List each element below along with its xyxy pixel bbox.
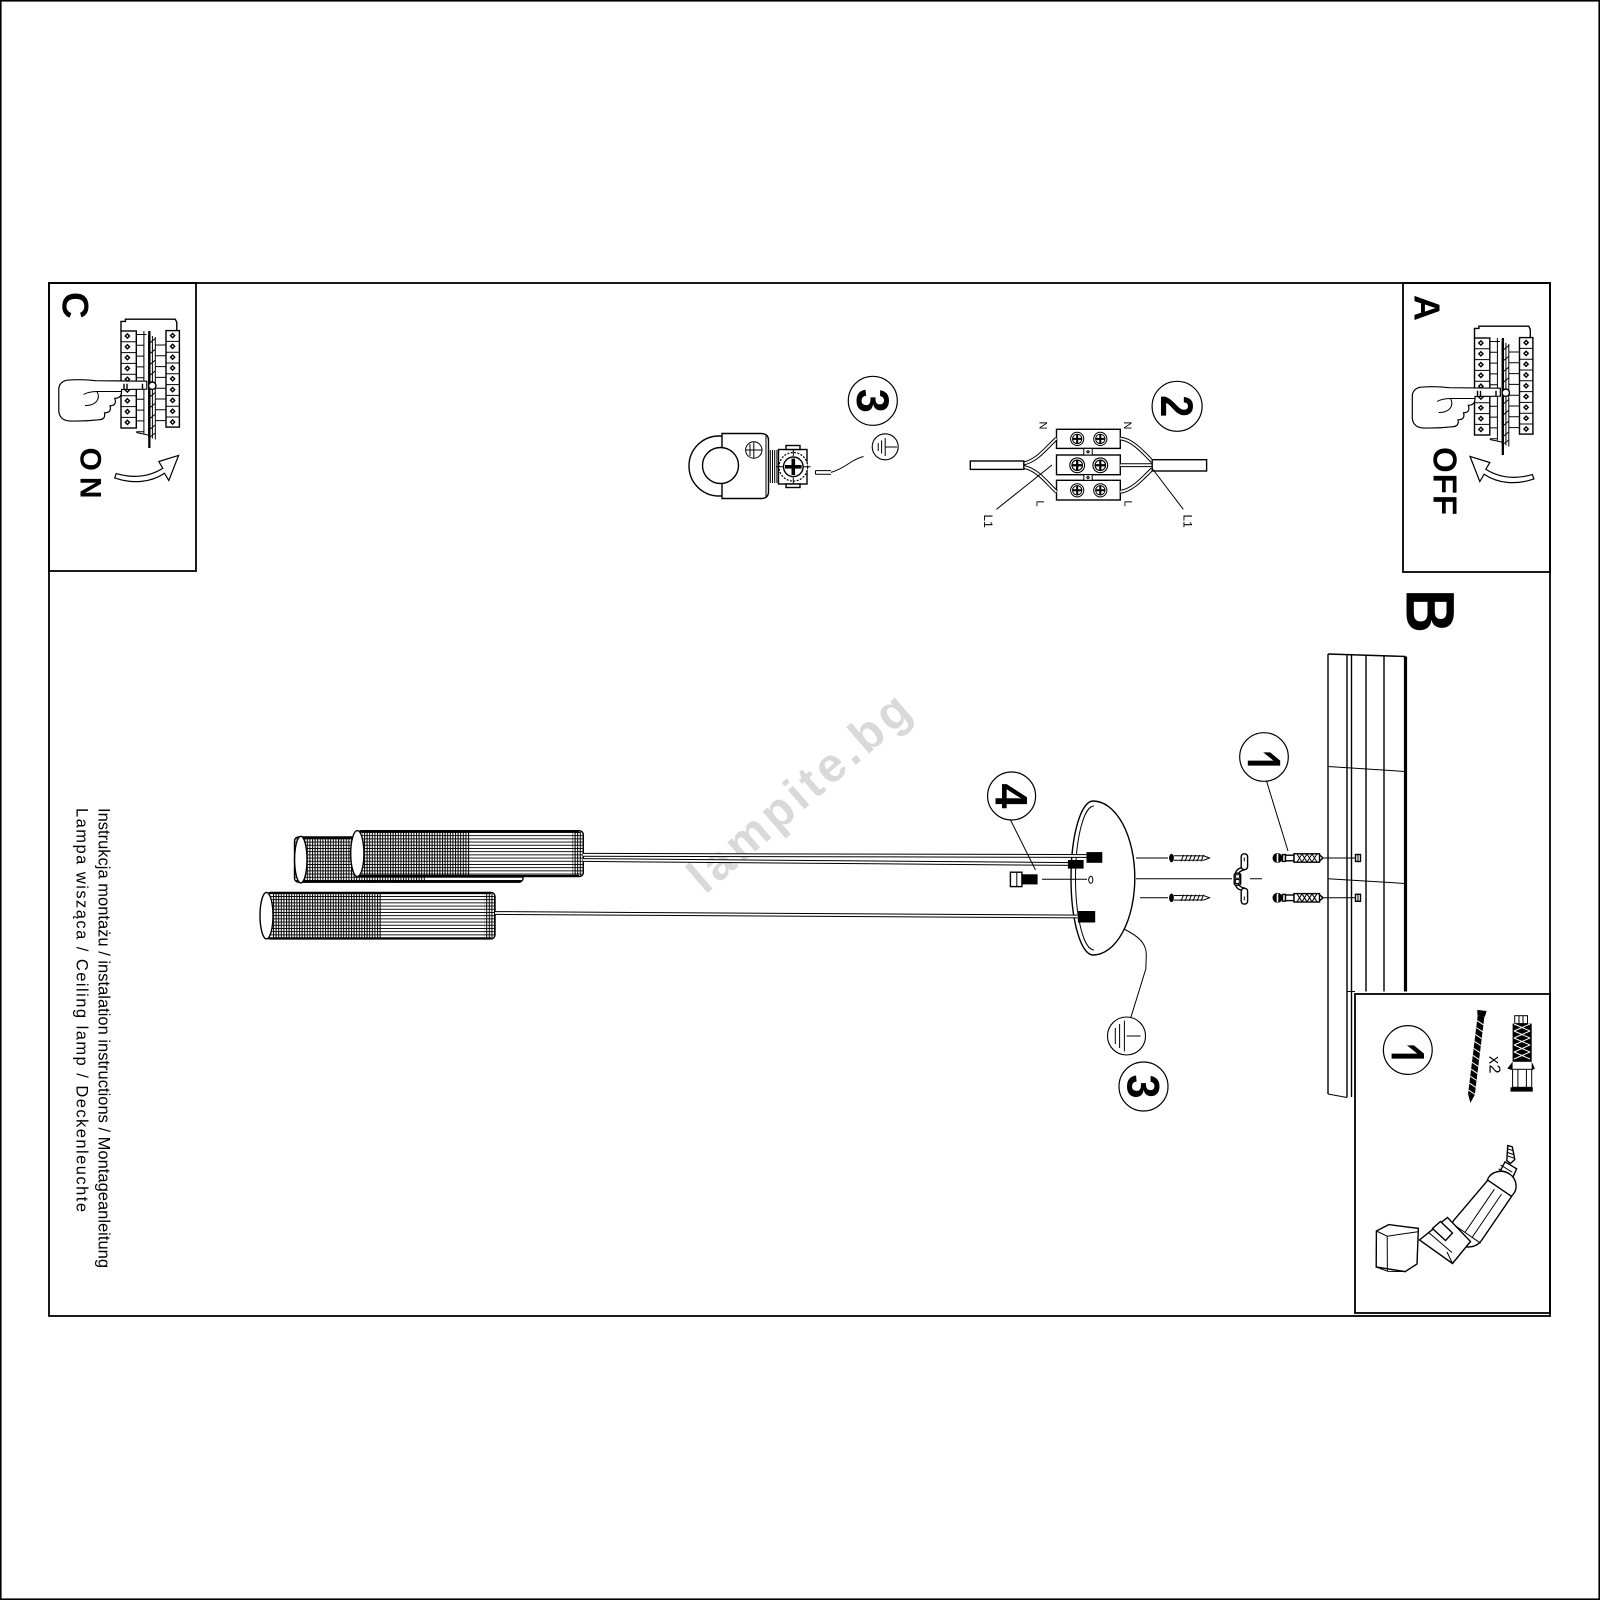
svg-text:L1: L1 <box>981 515 995 529</box>
svg-text:N: N <box>1036 422 1048 430</box>
svg-text:3: 3 <box>1118 1075 1169 1099</box>
svg-text:B: B <box>1392 589 1469 633</box>
svg-text:L: L <box>1034 501 1046 507</box>
svg-text:N: N <box>1121 422 1133 430</box>
svg-text:3: 3 <box>847 389 898 413</box>
svg-text:x2: x2 <box>1485 1056 1502 1074</box>
svg-text:OFF: OFF <box>1427 447 1464 516</box>
svg-text:Lampa wisząca / Ceiling lamp /: Lampa wisząca / Ceiling lamp / Deckenleu… <box>73 808 91 1212</box>
svg-text:Instrukcja montażu / instalati: Instrukcja montażu / instalation instruc… <box>95 808 113 1268</box>
svg-text:4: 4 <box>986 784 1037 809</box>
svg-text:2: 2 <box>1151 395 1202 417</box>
svg-text:C: C <box>55 292 96 319</box>
svg-text:L1: L1 <box>1181 515 1195 529</box>
svg-text:A: A <box>1407 295 1448 321</box>
svg-text:L: L <box>1122 501 1134 507</box>
